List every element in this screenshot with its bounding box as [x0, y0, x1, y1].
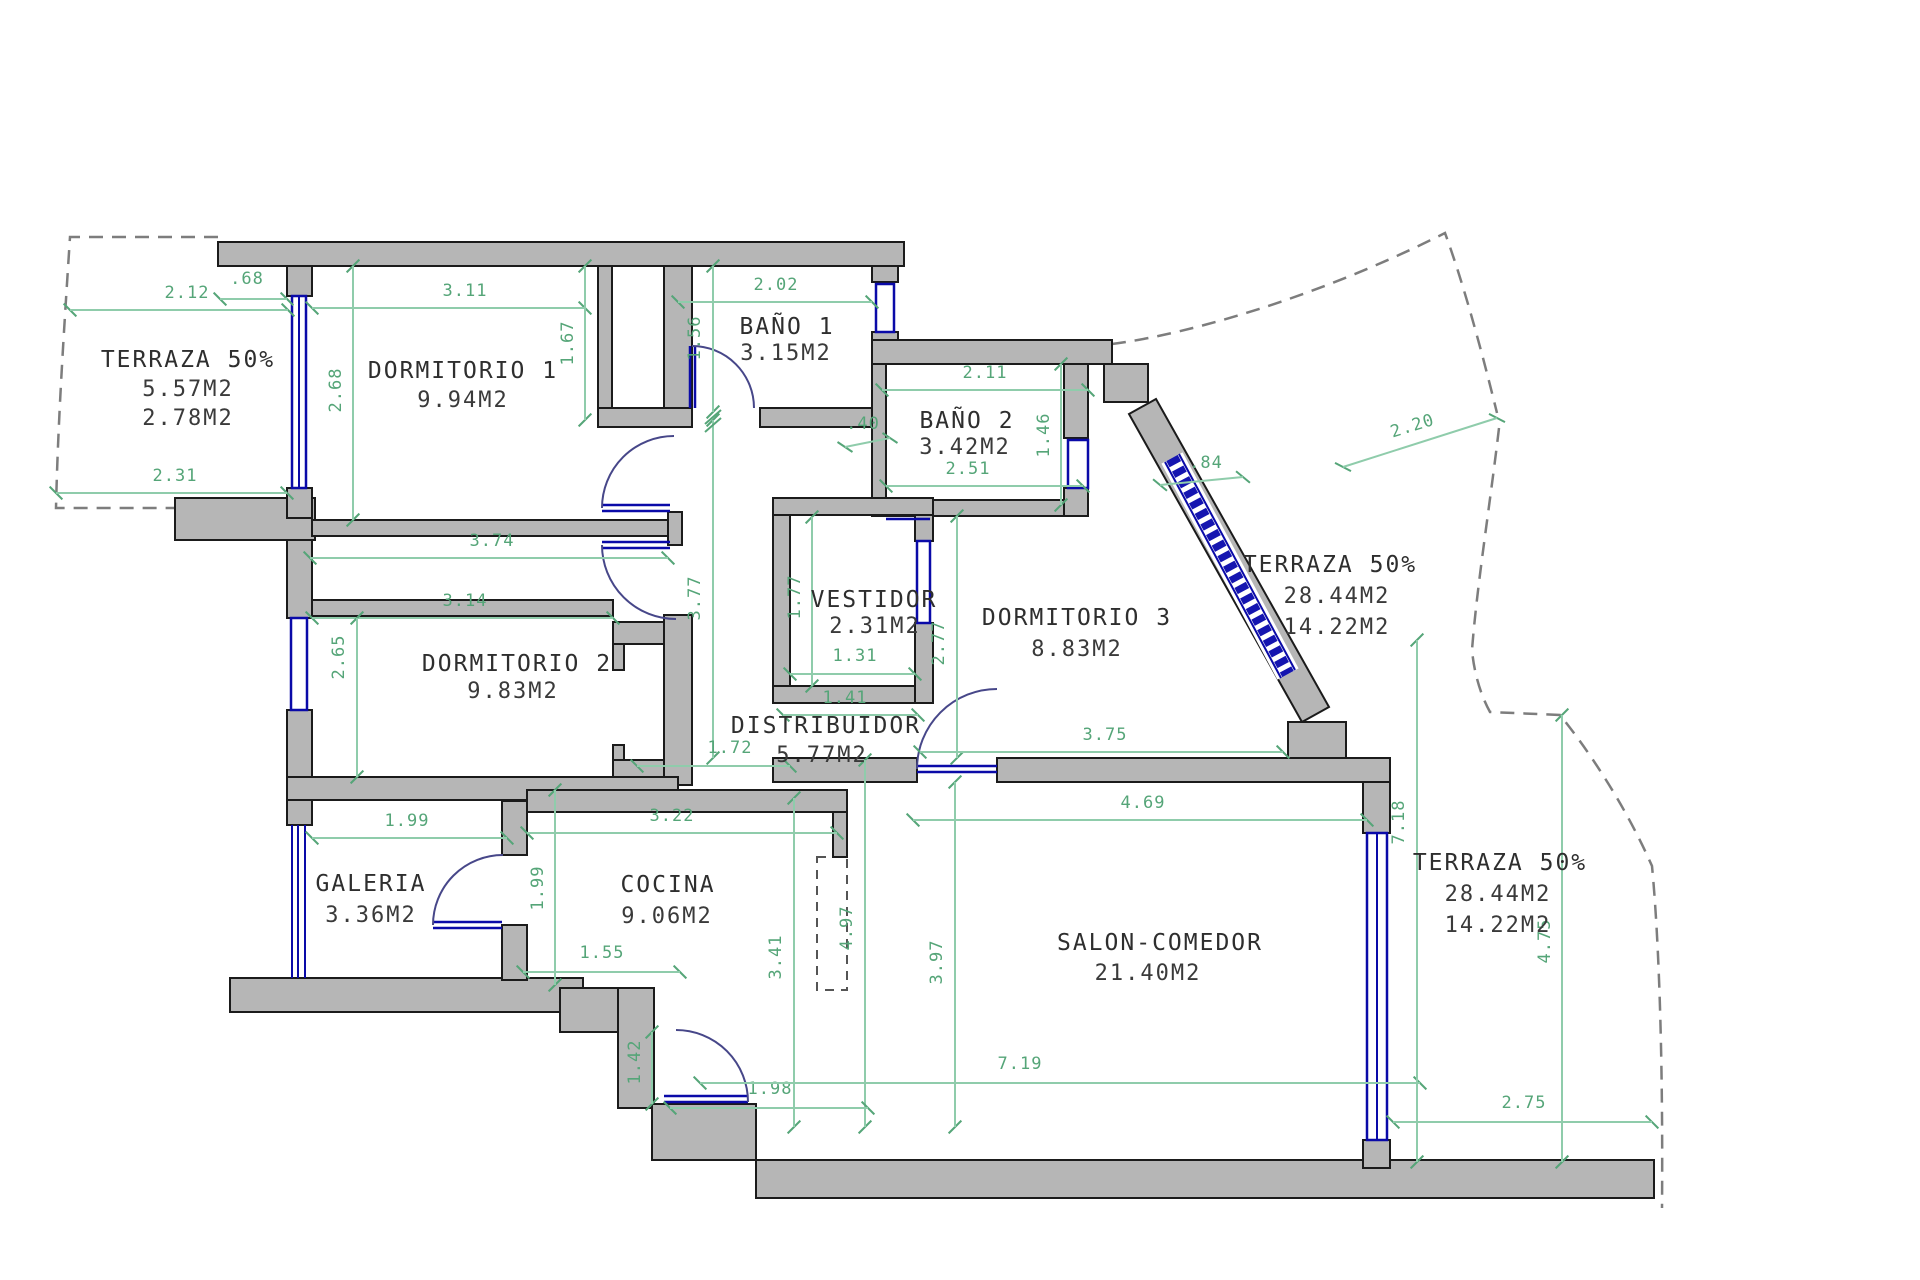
dim-label: 1.56 — [685, 316, 705, 361]
terrace-ne-outline — [1112, 233, 1497, 413]
wall — [287, 488, 312, 518]
room-label-bano1: BAÑO 1 3.15M2 — [739, 312, 834, 366]
dim-label: 1.99 — [385, 811, 430, 831]
room-name: COCINA — [620, 872, 715, 898]
dim-terraza-se-bottom: 2.75 — [1387, 1093, 1659, 1128]
dim-label: 1.42 — [625, 1040, 645, 1085]
room-area: 8.83M2 — [1031, 637, 1122, 662]
wall — [230, 978, 583, 1012]
room-label-dormitorio2: DORMITORIO 2 9.83M2 — [422, 651, 612, 704]
dim-label: 1.46 — [1034, 413, 1054, 458]
door-arc-galeria — [433, 855, 503, 925]
wall — [598, 408, 692, 427]
dim-label: 1.72 — [708, 738, 753, 758]
dim-label: 3.11 — [443, 281, 488, 301]
dim-label: 3.97 — [927, 940, 947, 985]
room-label-terraza-nw: TERRAZA 50% 5.57M2 2.78M2 — [101, 347, 275, 431]
window-dormitorio2 — [291, 618, 307, 710]
room-name: DORMITORIO 1 — [368, 358, 558, 384]
dim-closet-height: 1.67 — [558, 260, 591, 427]
dim-label: 3.22 — [650, 806, 695, 826]
dim-label: 1.77 — [785, 575, 805, 620]
floor-plan: 2.12 .68 3.11 2.31 2.68 1.67 2.02 1.56 3… — [0, 0, 1920, 1280]
wall — [598, 266, 612, 408]
dim-label: 1.99 — [528, 866, 548, 911]
dim-terraza-nw-window: .68 — [214, 269, 294, 305]
dim-terrace-edge: 2.20 — [1335, 410, 1505, 471]
dim-label: 1.41 — [823, 688, 868, 708]
wall — [1064, 364, 1088, 438]
room-label-dormitorio1: DORMITORIO 1 9.94M2 — [368, 358, 558, 413]
room-label-dormitorio3: DORMITORIO 3 8.83M2 — [982, 605, 1172, 662]
floor-plan-drawing: 2.12 .68 3.11 2.31 2.68 1.67 2.02 1.56 3… — [0, 0, 1920, 1280]
room-area: 2.31M2 — [829, 614, 920, 639]
dim-label: 3.77 — [685, 576, 705, 621]
room-name: DORMITORIO 3 — [982, 605, 1172, 631]
dim-label: 2.12 — [165, 283, 210, 303]
dim-label: .84 — [1189, 453, 1223, 473]
dim-salon-width-bottom: 7.19 — [694, 1054, 1427, 1089]
dim-wall-nub: .40 — [838, 414, 898, 452]
room-area: 3.15M2 — [740, 341, 831, 366]
wall — [1363, 1140, 1390, 1168]
room-area: 14.22M2 — [1284, 615, 1391, 640]
room-name: VESTIDOR — [811, 587, 938, 613]
dim-label: 3.75 — [1083, 725, 1128, 745]
terrace-se-outline — [1472, 428, 1662, 1208]
dim-bano1-width: 2.02 — [672, 275, 879, 308]
wall — [287, 710, 312, 825]
room-name: TERRAZA 50% — [1413, 850, 1587, 876]
wall — [664, 615, 692, 785]
dim-terraza-se-height: 7.18 — [1389, 634, 1423, 1169]
room-area: 5.77M2 — [776, 743, 867, 768]
dim-label: 2.75 — [1502, 1093, 1547, 1113]
wall — [997, 758, 1390, 782]
dim-label: 4.97 — [837, 906, 857, 951]
dim-label: 2.20 — [1388, 410, 1437, 442]
room-name: DISTRIBUIDOR — [731, 713, 921, 739]
room-name: BAÑO 1 — [739, 312, 834, 340]
dim-dormitorio1-width: 3.11 — [306, 281, 592, 314]
dim-dormitorio1-height: 2.68 — [326, 260, 359, 527]
room-name: BAÑO 2 — [919, 406, 1014, 434]
dim-label: 2.11 — [963, 363, 1008, 383]
wall — [1064, 488, 1088, 516]
dim-label: 4.69 — [1121, 793, 1166, 813]
dim-cocina-height: 1.99 — [528, 784, 561, 992]
dim-label: 2.31 — [153, 466, 198, 486]
room-area: 9.06M2 — [621, 904, 712, 929]
dim-label: 1.31 — [833, 646, 878, 666]
dim-cocina-bottom: 1.55 — [517, 943, 687, 978]
room-area: 5.57M2 — [142, 377, 233, 402]
dim-label: 2.68 — [326, 368, 346, 413]
dim-label: 1.55 — [580, 943, 625, 963]
dim-salon-width-top: 4.69 — [907, 793, 1374, 826]
wall — [652, 1104, 756, 1160]
wall — [756, 1160, 1654, 1198]
dim-label: .40 — [846, 414, 880, 434]
dim-bano2-width-bottom: 2.51 — [880, 459, 1090, 492]
room-label-galeria: GALERIA 3.36M2 — [316, 871, 427, 928]
dim-label: 2.65 — [329, 635, 349, 680]
room-label-bano2: BAÑO 2 3.42M2 — [919, 406, 1014, 460]
dim-label: .68 — [230, 269, 264, 289]
door-arc-entry — [676, 1030, 748, 1102]
dim-label: 2.51 — [946, 459, 991, 479]
room-area: 3.42M2 — [919, 435, 1010, 460]
room-label-salon: SALON-COMEDOR 21.40M2 — [1057, 930, 1263, 986]
wall — [287, 540, 312, 618]
wall — [872, 340, 1112, 364]
room-area: 9.83M2 — [467, 679, 558, 704]
wall — [613, 644, 624, 670]
wall — [668, 512, 682, 545]
dim-label: 3.14 — [443, 591, 488, 611]
room-name: DORMITORIO 2 — [422, 651, 612, 677]
wall — [872, 266, 898, 282]
dim-dormitorio2-height: 2.65 — [329, 612, 363, 784]
dim-dormitorio3-width: 3.75 — [914, 725, 1290, 758]
room-name: TERRAZA 50% — [1243, 552, 1417, 578]
wall — [833, 812, 847, 857]
room-area: 28.44M2 — [1284, 584, 1391, 609]
dim-vestidor-width: 1.31 — [784, 646, 922, 680]
dim-label: 7.19 — [998, 1054, 1043, 1074]
room-area: 14.22M2 — [1445, 913, 1552, 938]
room-name: GALERIA — [316, 871, 427, 897]
room-label-cocina: COCINA 9.06M2 — [620, 872, 715, 929]
dim-label: 3.41 — [766, 935, 786, 980]
dim-bano2-height: 1.46 — [1034, 358, 1067, 512]
wall — [218, 242, 904, 266]
dim-terraza-nw-bottom: 2.31 — [50, 466, 294, 499]
dim-label: 1.67 — [558, 321, 578, 366]
dim-galeria-width: 1.99 — [306, 811, 514, 844]
wall — [773, 498, 933, 515]
wall — [1363, 782, 1390, 833]
room-area: 9.94M2 — [417, 388, 508, 413]
wall — [1104, 364, 1148, 402]
room-area: 21.40M2 — [1095, 961, 1202, 986]
dim-dormitorio3-height: 2.77 — [929, 510, 963, 765]
room-name: TERRAZA 50% — [101, 347, 275, 373]
dim-salon-height: 3.97 — [927, 776, 961, 1134]
dim-label: 7.18 — [1389, 800, 1409, 845]
room-area: 28.44M2 — [1445, 882, 1552, 907]
dim-label: 2.02 — [754, 275, 799, 295]
wall — [287, 266, 312, 296]
room-name: SALON-COMEDOR — [1057, 930, 1263, 956]
door-arc-dormitorio1 — [602, 436, 674, 508]
room-area: 2.78M2 — [142, 406, 233, 431]
dim-label: 3.74 — [470, 531, 515, 551]
dim-label: 2.77 — [929, 621, 949, 666]
room-area: 3.36M2 — [325, 903, 416, 928]
